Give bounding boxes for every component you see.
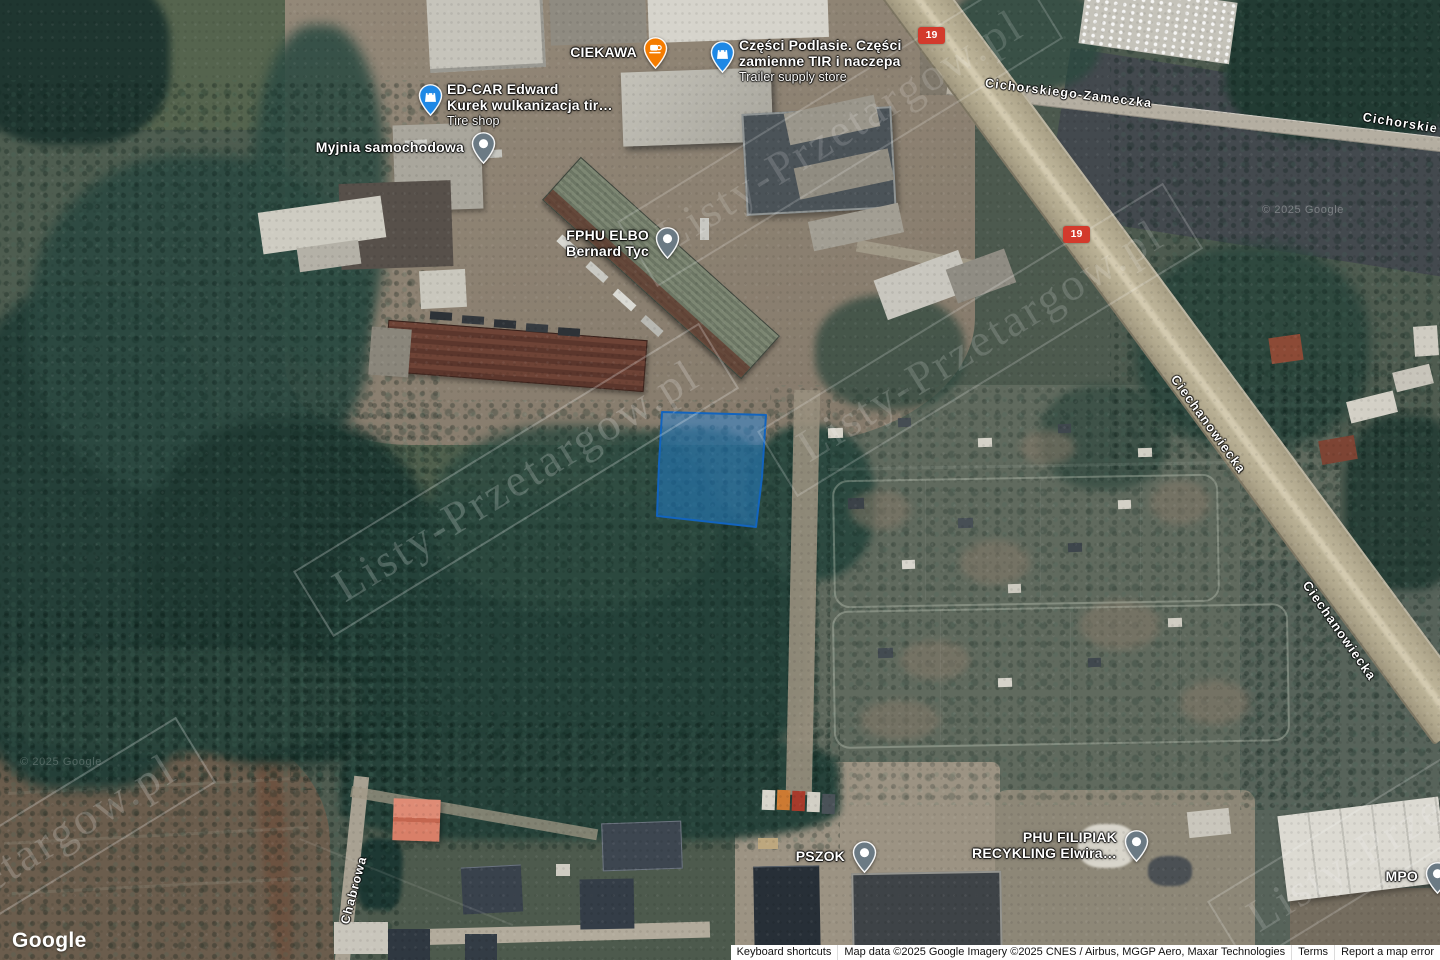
map-canvas[interactable]: Listy-Przetargow.pl Listy-Przetargow.pl … [0, 0, 1440, 960]
poi-label-ed-car[interactable]: ED-CAR Edward Kurek wulkanizacja tir… Ti… [447, 81, 613, 129]
building-roof-mpo [1277, 796, 1440, 901]
house-roof [334, 922, 388, 954]
shed [1088, 658, 1101, 667]
house-roof [601, 821, 683, 872]
house-roof [1392, 364, 1434, 393]
poi-label-line1: PHU FILIPIAK [972, 829, 1117, 845]
allotment-path [925, 480, 926, 600]
report-map-error-link[interactable]: Report a map error [1334, 945, 1440, 960]
allotment-path [1040, 480, 1041, 600]
shed [1118, 500, 1131, 509]
truck [758, 838, 778, 849]
cafe-pin-icon [643, 37, 668, 69]
trailer [526, 323, 549, 333]
shed [848, 498, 864, 510]
generic-pin-icon [852, 841, 877, 873]
generic-pin-icon [1425, 862, 1440, 894]
allotment-block-outline [832, 474, 1220, 609]
poi-label-myjnia[interactable]: Myjnia samochodowa [316, 139, 464, 155]
truck [792, 791, 806, 811]
shed [1187, 808, 1231, 838]
allotment-path [1180, 614, 1181, 740]
poi-label-ciekawa[interactable]: CIEKAWA [570, 44, 637, 60]
shed [878, 648, 893, 659]
house-roof-red [1268, 334, 1303, 364]
house-roof [388, 929, 430, 960]
terms-link[interactable]: Terms [1291, 945, 1334, 960]
trailer [700, 218, 709, 240]
poi-label-pszok[interactable]: PSZOK [796, 848, 845, 864]
poi-label-line2: Bernard Tyc [566, 243, 649, 259]
allotment-path [1140, 482, 1141, 600]
scrap-heap [1148, 856, 1192, 886]
trailer [558, 327, 581, 337]
shed [1058, 424, 1071, 433]
shed [958, 518, 973, 529]
poi-label-phu-filipiak[interactable]: PHU FILIPIAK RECYKLING Elwira… [972, 829, 1117, 861]
shed [898, 418, 911, 427]
garden-plot [1020, 430, 1075, 465]
house-roof-red [392, 798, 440, 842]
allotment-path [940, 610, 941, 740]
house-roof [1413, 325, 1439, 357]
truck [807, 792, 821, 812]
truck [822, 794, 836, 814]
google-logo[interactable]: Google [12, 929, 87, 953]
poi-label-line2: RECYKLING Elwira… [972, 845, 1117, 861]
shed [1008, 584, 1021, 593]
poi-label-subtitle: Trailer supply store [739, 69, 902, 85]
shed [1168, 618, 1182, 627]
pin-phu-filipiak[interactable] [1124, 830, 1149, 867]
pin-pszok[interactable] [852, 841, 877, 878]
trailer [462, 315, 485, 325]
poi-label-line1: ED-CAR Edward [447, 81, 613, 97]
forest-patch [0, 0, 170, 145]
shopping-bag-pin-icon [418, 84, 443, 116]
house-roof [580, 879, 635, 930]
pin-czesci-podlasie[interactable] [710, 41, 735, 78]
allotment-path [1070, 612, 1071, 740]
generic-pin-icon [655, 227, 680, 259]
shed [556, 864, 570, 876]
route-19-shield-north: 19 [918, 27, 945, 44]
house-roof [465, 934, 497, 960]
route-19-shield-mid: 19 [1063, 226, 1090, 243]
generic-pin-icon [1124, 830, 1149, 862]
pin-ed-car[interactable] [418, 84, 443, 121]
building-roof [426, 0, 546, 73]
trailer [494, 319, 517, 329]
shed [978, 438, 992, 447]
trailer [430, 311, 453, 321]
poi-label-subtitle: Tire shop [447, 113, 613, 129]
pin-fphu-elbo[interactable] [655, 227, 680, 264]
map-data-credit: Map data ©2025 Google Imagery ©2025 CNES… [837, 945, 1291, 960]
shed [1138, 448, 1152, 457]
shed [1068, 543, 1082, 552]
building-roof [419, 269, 467, 309]
forest-patch [0, 648, 360, 753]
shopping-bag-pin-icon [710, 41, 735, 73]
attribution-bar: Keyboard shortcuts Map data ©2025 Google… [731, 945, 1440, 960]
pin-mpo[interactable] [1425, 862, 1440, 899]
shed [828, 428, 843, 439]
building-roof [368, 327, 412, 378]
shed [902, 560, 915, 569]
building-roof [549, 0, 647, 46]
generic-pin-icon [471, 132, 496, 164]
truck [762, 790, 776, 810]
forest-patch [600, 428, 770, 523]
keyboard-shortcuts-button[interactable]: Keyboard shortcuts [731, 945, 838, 960]
poi-label-czesci-podlasie[interactable]: Części Podlasie. Części zamienne TIR i n… [739, 37, 902, 85]
poi-label-line2: zamienne TIR i naczepa [739, 53, 902, 69]
poi-label-mpo[interactable]: MPO [1386, 868, 1419, 884]
pin-myjnia[interactable] [471, 132, 496, 169]
shed [998, 678, 1012, 687]
truck [777, 790, 791, 810]
poi-label-line1: Części Podlasie. Części [739, 37, 902, 53]
pin-ciekawa[interactable] [643, 37, 668, 74]
poi-label-line2: Kurek wulkanizacja tir… [447, 97, 613, 113]
poi-label-fphu-elbo[interactable]: FPHU ELBO Bernard Tyc [566, 227, 649, 259]
poi-label-line1: FPHU ELBO [566, 227, 649, 243]
allotment-block-outline [832, 603, 1290, 749]
